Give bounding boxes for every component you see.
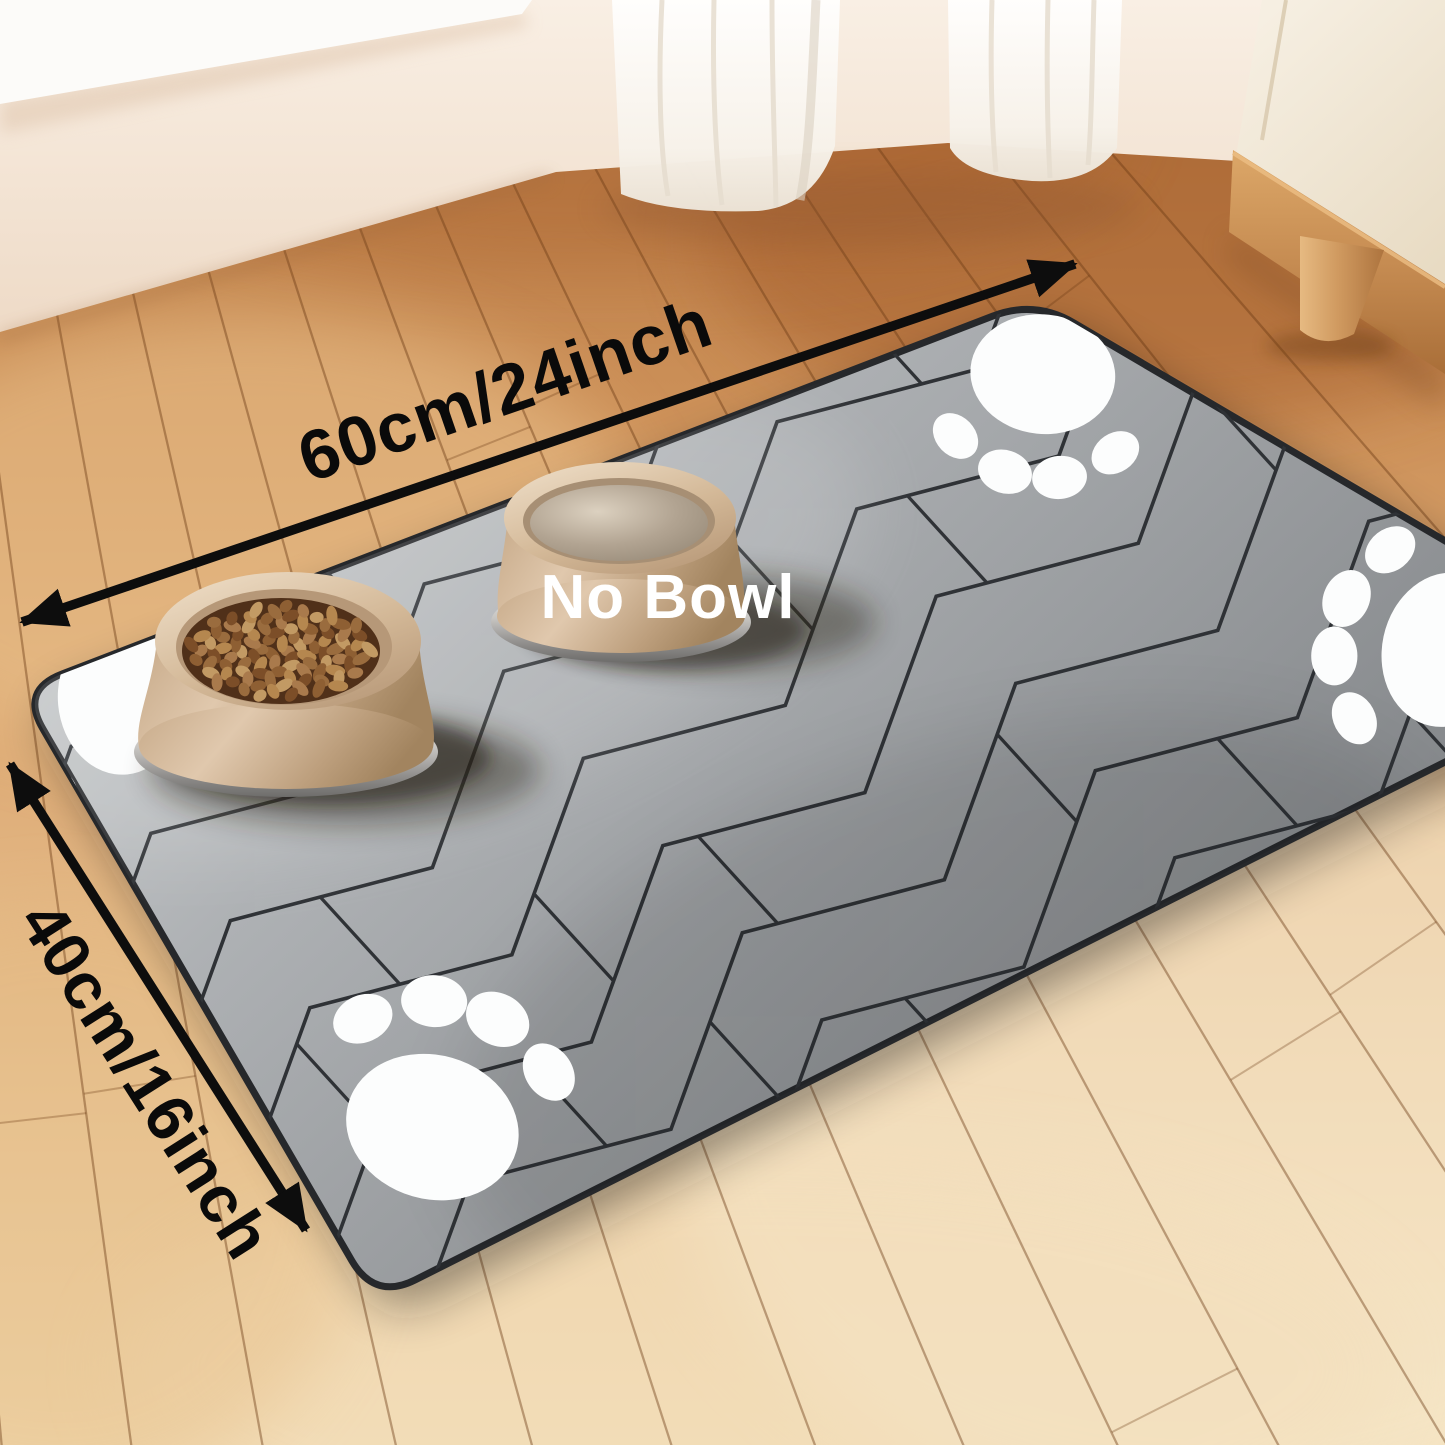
curtain-panel — [948, 0, 1122, 181]
pet-feeding-mat-scene: 60cm/24inch 40cm/16inch No Bowl — [0, 0, 1445, 1445]
water-surface — [530, 485, 708, 561]
food-bowl-body-bottom — [139, 703, 433, 789]
no-bowl-label: No Bowl — [541, 563, 796, 632]
product-photo: 60cm/24inch 40cm/16inch No Bowl — [0, 0, 1445, 1445]
